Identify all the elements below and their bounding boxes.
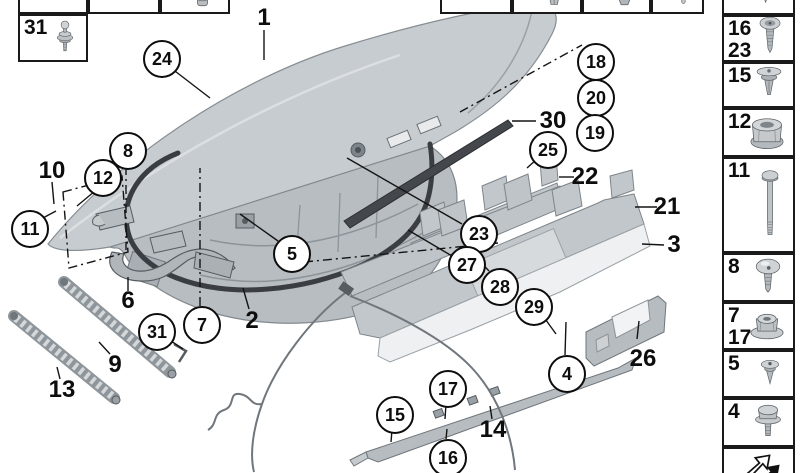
- callout-19[interactable]: 19: [576, 114, 614, 152]
- parts-box-15[interactable]: 15: [722, 62, 795, 108]
- threaded-stud-icon: [178, 0, 228, 10]
- callout-1[interactable]: 1: [257, 4, 270, 32]
- parts-box-top-right-4[interactable]: [651, 0, 704, 14]
- dome-cap-icon: [36, 0, 86, 10]
- callout-21[interactable]: 21: [654, 193, 681, 221]
- callout-16[interactable]: 16: [429, 439, 467, 473]
- callout-10[interactable]: 10: [39, 157, 66, 185]
- torx-screw-icon: [750, 15, 790, 58]
- part-number: 4: [728, 400, 740, 423]
- callout-5[interactable]: 5: [273, 235, 311, 273]
- flange-nut-washer-icon: [744, 304, 790, 346]
- parts-box-11[interactable]: 11: [722, 157, 795, 253]
- grommet-icon: [456, 0, 512, 10]
- callout-24[interactable]: 24: [143, 40, 181, 78]
- callout-12[interactable]: 12: [84, 159, 122, 197]
- flange-nut-icon: [744, 109, 790, 153]
- callout-17[interactable]: 17: [429, 370, 467, 408]
- callout-22[interactable]: 22: [572, 163, 599, 191]
- part-number: 5: [728, 352, 740, 375]
- parts-box-top-right-3[interactable]: [582, 0, 651, 14]
- direction-arrows-icon: [737, 452, 799, 473]
- part-number: 7: [728, 304, 740, 327]
- parts-box-4[interactable]: 4: [722, 398, 795, 447]
- callout-14[interactable]: 14: [480, 416, 507, 444]
- parts-box-31[interactable]: 31: [18, 14, 88, 62]
- hex-flange-bolt-icon: [746, 399, 790, 443]
- callout-4[interactable]: 4: [548, 355, 586, 393]
- callout-29[interactable]: 29: [515, 288, 553, 326]
- callout-31[interactable]: 31: [138, 313, 176, 351]
- callout-9[interactable]: 9: [108, 351, 121, 379]
- callout-11[interactable]: 11: [11, 210, 49, 248]
- parts-box-7-17[interactable]: 7 17: [722, 302, 795, 350]
- ball-pin-icon: [47, 16, 83, 58]
- parts-box-8[interactable]: 8: [722, 253, 795, 302]
- spring-clip-icon: [599, 0, 649, 10]
- part-number: 8: [728, 255, 740, 278]
- callout-15[interactable]: 15: [376, 396, 414, 434]
- callout-6[interactable]: 6: [121, 287, 134, 315]
- screw-shank-icon: [743, 0, 787, 11]
- parts-box-top-right-1[interactable]: [440, 0, 512, 14]
- parts-box-5[interactable]: 5: [722, 350, 795, 398]
- callout-18[interactable]: 18: [577, 43, 615, 81]
- part-number: 11: [728, 159, 750, 182]
- parts-box-screw-partial[interactable]: [722, 0, 795, 15]
- callout-25[interactable]: 25: [529, 131, 567, 169]
- callout-30[interactable]: 30: [540, 107, 567, 135]
- parts-box-direction-arrows[interactable]: [722, 447, 795, 473]
- pan-head-screw-icon: [746, 254, 790, 298]
- dome-cap-icon: [105, 0, 159, 10]
- callout-7[interactable]: 7: [183, 306, 221, 344]
- parts-box-top-left-2[interactable]: [88, 0, 160, 14]
- plastic-rivet-icon: [750, 352, 790, 394]
- callout-13[interactable]: 13: [49, 376, 76, 404]
- parts-box-top-left-1[interactable]: [18, 0, 88, 14]
- wedge-clip-icon: [530, 0, 578, 10]
- callout-26[interactable]: 26: [630, 345, 657, 373]
- part-number: 16: [728, 17, 751, 40]
- callout-2[interactable]: 2: [245, 307, 258, 335]
- parts-box-16-23[interactable]: 16 23: [722, 15, 795, 62]
- callout-27[interactable]: 27: [448, 246, 486, 284]
- part-number: 31: [24, 16, 47, 39]
- callout-28[interactable]: 28: [481, 268, 519, 306]
- long-bolt-icon: [750, 159, 790, 249]
- part-number: 23: [728, 39, 751, 62]
- parts-box-12[interactable]: 12: [722, 108, 795, 157]
- callout-3[interactable]: 3: [667, 231, 680, 259]
- pin-icon: [665, 0, 701, 10]
- callout-20[interactable]: 20: [577, 79, 615, 117]
- expansion-rivet-icon: [748, 63, 790, 104]
- parts-box-top-right-2[interactable]: [512, 0, 582, 14]
- parts-diagram-stage: 31 16 23 15 12 11 8 7 17: [0, 0, 800, 473]
- parts-box-top-left-3[interactable]: [160, 0, 230, 14]
